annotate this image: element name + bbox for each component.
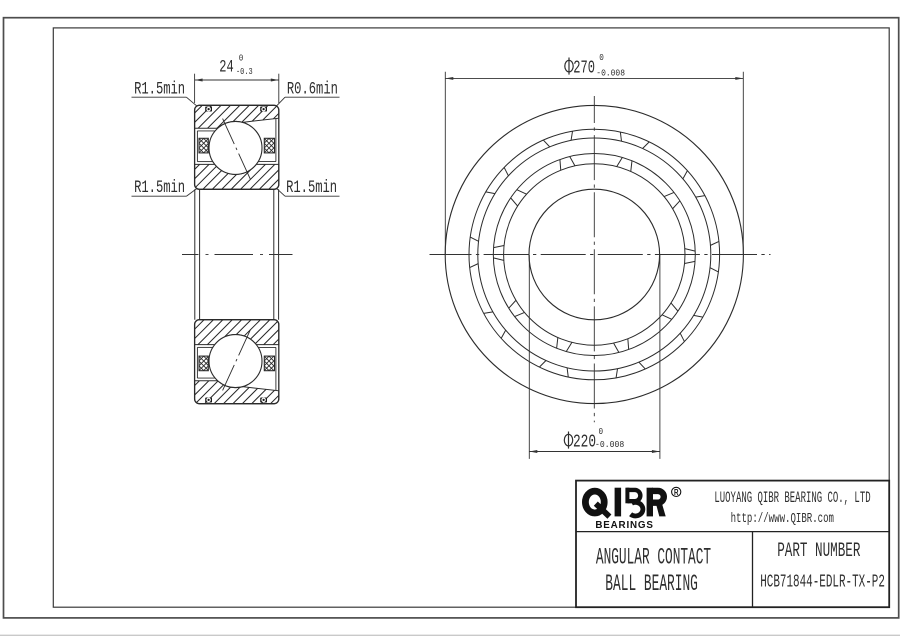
- svg-text:0: 0: [599, 427, 604, 437]
- svg-text:PART NUMBER: PART NUMBER: [777, 540, 860, 563]
- svg-text:-0.008: -0.008: [595, 440, 624, 450]
- svg-text:LUOYANG QIBR BEARING CO., LTD: LUOYANG QIBR BEARING CO., LTD: [714, 489, 870, 507]
- svg-text:0: 0: [599, 53, 604, 63]
- svg-text:-0.3: -0.3: [236, 67, 253, 77]
- svg-text:R: R: [674, 488, 679, 497]
- svg-text:http://www.QIBR.com: http://www.QIBR.com: [731, 511, 834, 527]
- svg-text:R0.6min: R0.6min: [287, 79, 338, 99]
- svg-text:R1.5min: R1.5min: [134, 178, 185, 198]
- svg-text:BALL BEARING: BALL BEARING: [605, 571, 698, 597]
- svg-text:BEARINGS: BEARINGS: [595, 520, 653, 531]
- svg-text:R1.5min: R1.5min: [286, 178, 337, 198]
- svg-text:220: 220: [573, 433, 596, 453]
- svg-text:270: 270: [573, 59, 595, 79]
- svg-text:-0.008: -0.008: [596, 69, 625, 79]
- svg-text:R1.5min: R1.5min: [134, 79, 185, 99]
- svg-text:24: 24: [219, 57, 233, 77]
- svg-text:ANGULAR CONTACT: ANGULAR CONTACT: [596, 545, 711, 571]
- svg-text:0: 0: [239, 54, 244, 64]
- svg-text:HCB71844-EDLR-TX-P2: HCB71844-EDLR-TX-P2: [760, 572, 885, 592]
